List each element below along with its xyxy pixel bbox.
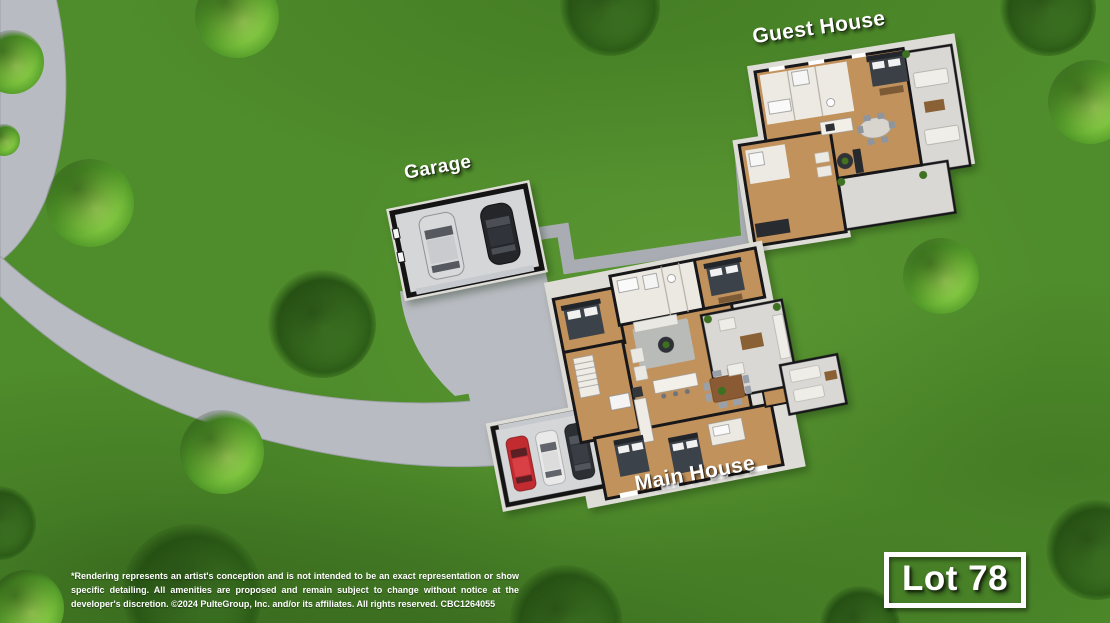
armchair-icon xyxy=(634,365,648,381)
fridge-icon xyxy=(632,386,644,398)
shower-icon xyxy=(642,273,658,289)
armchair-icon xyxy=(630,347,644,363)
shower-icon xyxy=(749,152,765,167)
site-plan-rendering: Guest House Garage Main House Lot 78 *Re… xyxy=(0,0,1110,623)
shower-icon xyxy=(791,70,809,86)
lot-number-badge: Lot 78 xyxy=(884,552,1026,608)
side-patio xyxy=(780,354,846,414)
street-road xyxy=(0,0,66,261)
lot-number-text: Lot 78 xyxy=(902,559,1008,598)
guest-house-floorplan xyxy=(721,33,983,253)
disclaimer-text: *Rendering represents an artist's concep… xyxy=(71,570,519,612)
window xyxy=(397,252,405,263)
side-door xyxy=(392,228,400,239)
guest-left-wing xyxy=(739,131,846,246)
site-plan-scene xyxy=(0,0,1110,623)
